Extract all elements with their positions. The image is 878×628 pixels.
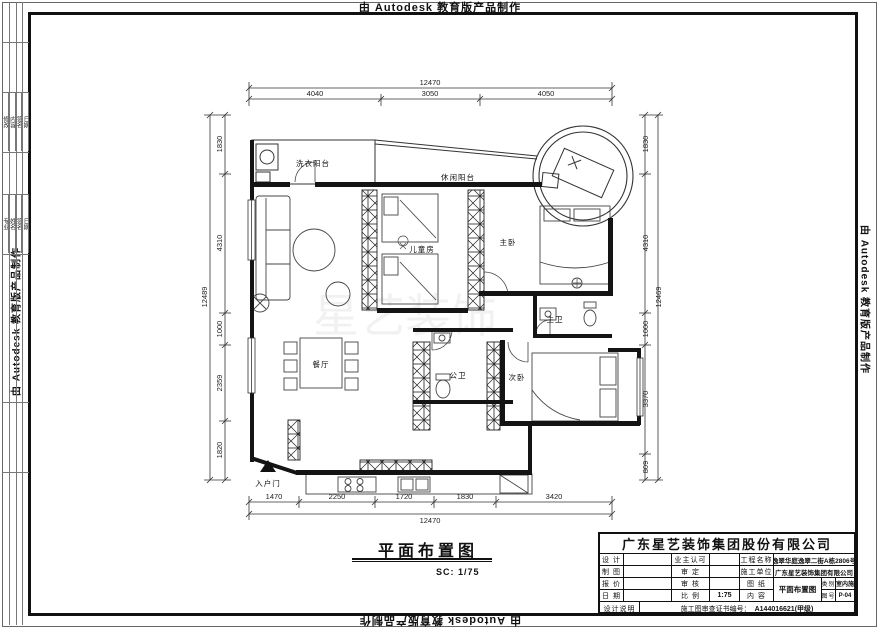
builder-value: 广东星艺装饰集团有限公司 xyxy=(774,566,854,577)
category-value: 室内施 xyxy=(836,578,854,589)
dim-top-total: 12470 xyxy=(420,78,441,87)
scale-value: 1:75 xyxy=(710,590,739,601)
edge-signature-strip: 修改 内容 签名 日期 专业 姓名 签名 日期 xyxy=(2,2,29,625)
note-label: 设计说明 xyxy=(600,602,640,615)
dim-top-2: 3050 xyxy=(422,89,439,98)
title-underline-1 xyxy=(352,558,492,560)
sheet-label: 图 纸 xyxy=(740,578,773,590)
project-value: 逸翠华庭逸翠二街A栋2806号 xyxy=(774,554,854,565)
dim-right-total: 12469 xyxy=(654,287,663,308)
dim-right-5: 809 xyxy=(641,461,650,474)
builder-label: 施工单位 xyxy=(740,566,774,577)
dim-right-1: 1830 xyxy=(641,136,650,153)
review-label: 审 核 xyxy=(672,578,709,590)
edge-strip-table-1: 修改 内容 签名 日期 xyxy=(2,93,29,151)
approve-value xyxy=(710,566,740,577)
quote-label: 报 价 xyxy=(600,578,623,590)
edge-strip-cell: 修改 xyxy=(2,93,9,151)
label-kids-room: 儿童房 xyxy=(409,244,435,254)
edge-strip-cell: 内容 xyxy=(9,93,16,151)
category-label: 类别 xyxy=(822,578,836,589)
draft-value xyxy=(624,566,672,577)
kitchen-fixtures xyxy=(306,474,532,494)
drawing-name: 平面布置图 xyxy=(774,578,822,601)
dim-left-3: 1000 xyxy=(215,321,224,338)
cert-number: A144016621(甲级) xyxy=(755,604,814,614)
edge-strip-cell: 签名 xyxy=(16,93,23,151)
dim-bottom-2: 2250 xyxy=(329,492,346,501)
frame-right xyxy=(855,12,858,616)
date-value xyxy=(624,590,671,601)
dim-left-total: 12489 xyxy=(200,287,209,308)
edge-strip-cell: 日期 xyxy=(22,93,29,151)
company-name: 广东星艺装饰集团股份有限公司 xyxy=(600,534,854,554)
design-label: 设 计 xyxy=(600,554,624,565)
project-label: 工程名称 xyxy=(740,554,774,565)
edge-strip-cell: 日期 xyxy=(22,195,29,253)
design-value xyxy=(624,554,672,565)
dim-left-4: 2359 xyxy=(215,375,224,392)
title-underline-2 xyxy=(352,561,492,562)
label-dining: 餐厅 xyxy=(313,360,330,369)
label-public-bath: 公卫 xyxy=(450,371,467,380)
edge-strip-cell: 专业 xyxy=(2,195,9,253)
plan-scale: SC: 1/75 xyxy=(436,567,480,577)
dim-right-4: 3370 xyxy=(641,391,650,408)
dim-right-3: 1000 xyxy=(641,321,650,338)
dim-top-1: 4040 xyxy=(307,89,324,98)
scale-label: 比 例 xyxy=(672,590,709,601)
leisure-balcony-glazing xyxy=(375,140,537,159)
round-balcony xyxy=(533,126,633,226)
dim-left-5: 1820 xyxy=(215,442,224,459)
floor-plan: 星艺装饰 xyxy=(200,70,680,530)
label-second-bedroom: 次卧 xyxy=(509,372,526,382)
dim-right-2: 4310 xyxy=(641,235,650,252)
number-label: 图号 xyxy=(822,590,836,601)
dim-top-3: 4050 xyxy=(538,89,555,98)
edge-strip-table-2: 专业 姓名 签名 日期 xyxy=(2,195,29,253)
frame-top xyxy=(28,12,858,15)
drawing-sheet: { "watermark": "由 Autodesk 教育版产品制作", "pl… xyxy=(0,0,878,628)
content-label: 内 容 xyxy=(740,590,773,601)
dim-bottom-1: 1470 xyxy=(266,492,283,501)
quote-value xyxy=(624,578,671,590)
watermark-right: 由 Autodesk 教育版产品制作 xyxy=(859,220,874,380)
dim-bottom-4: 1830 xyxy=(457,492,474,501)
number-value: P-04 xyxy=(836,590,854,601)
owner-label: 业主认可 xyxy=(672,554,710,565)
title-block: 广东星艺装饰集团股份有限公司 设 计 业主认可 工程名称 逸翠华庭逸翠二街A栋2… xyxy=(598,532,856,614)
label-master-bath: 主卫 xyxy=(547,314,564,324)
label-master-bedroom: 主卧 xyxy=(500,237,517,247)
label-entry: 入户门 xyxy=(255,478,281,488)
draft-label: 制 图 xyxy=(600,566,624,577)
dim-bottom-3: 1720 xyxy=(396,492,413,501)
dim-left-1: 1830 xyxy=(215,136,224,153)
cert-label: 施工图审查证书编号： xyxy=(681,604,751,614)
dim-left-2: 4310 xyxy=(215,235,224,252)
edge-strip-cell: 签名 xyxy=(16,195,23,253)
label-leisure-balcony: 休闲阳台 xyxy=(441,172,475,182)
second-bedroom-furniture xyxy=(532,353,618,421)
date-label: 日 期 xyxy=(600,590,623,601)
approve-label: 审 定 xyxy=(672,566,710,577)
dim-bottom-5: 3420 xyxy=(546,492,563,501)
owner-value xyxy=(710,554,740,565)
edge-strip-cell: 姓名 xyxy=(9,195,16,253)
review-value xyxy=(710,578,739,590)
label-laundry-balcony: 洗衣阳台 xyxy=(296,158,330,168)
dim-bottom-total: 12470 xyxy=(420,516,441,525)
